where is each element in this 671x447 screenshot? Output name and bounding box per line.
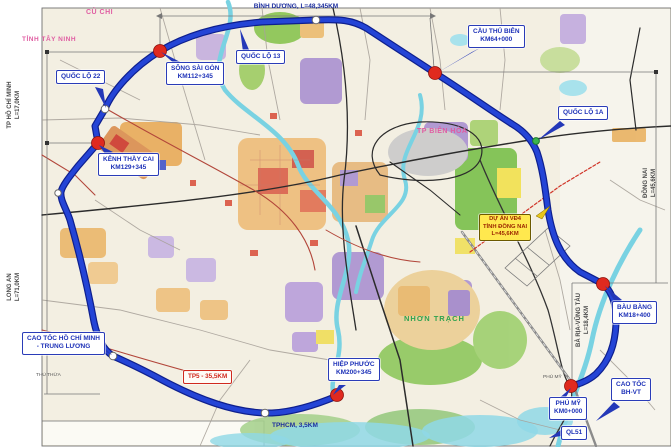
callout-phu-my: PHÚ MỸ KM0+000: [549, 397, 587, 420]
callout-cau-thu-bien: CẦU THỦ BIÊN KM64+000: [468, 25, 525, 48]
edge-section-dong-nai: ĐỒNG NAI L=45,6KM: [642, 168, 658, 198]
region-label-cu-chi: CỦ CHI: [86, 9, 113, 16]
segment-length-label: TP5 - 35,5KM: [188, 373, 227, 380]
project-length: L=45,6KM: [483, 231, 527, 239]
junction-red-phu-my: [565, 380, 578, 393]
junction-white-left: [55, 190, 61, 196]
callout-quoc-lo-22: QUỐC LỘ 22: [56, 70, 105, 84]
callout-kenh-thay-cai: KÊNH THẦY CAI KM129+345: [98, 153, 159, 176]
callout-quoc-lo-1a: QUỐC LỘ 1A: [558, 106, 608, 120]
callout-label: QUỐC LỘ 13: [241, 53, 280, 60]
callout-km: KM129+345: [103, 164, 154, 172]
section-name: ĐỒNG NAI: [642, 168, 650, 198]
junction-green-ql1a: [533, 138, 540, 145]
callout-km: KM64+000: [473, 36, 520, 44]
callout-km: KM112+345: [171, 73, 219, 81]
edge-section-long-an: LONG AN L=71,0KM: [6, 273, 22, 301]
callout-line1: CAO TỐC: [616, 381, 646, 389]
callout-quoc-lo-13: QUỐC LỘ 13: [236, 50, 285, 64]
ring-road-4-planning-map: QUỐC LỘ 22 SÔNG SÀI GÒN KM112+345 QUỐC L…: [0, 0, 671, 447]
junction-white-top: [312, 16, 320, 24]
callout-cao-toc-bh-vt: CAO TỐC BH-VT: [611, 378, 651, 401]
callout-km: KM0+000: [554, 408, 582, 416]
project-line2: TỈNH ĐỒNG NAI: [483, 224, 527, 232]
callout-name: HIỆP PHƯỚC: [333, 361, 375, 369]
callout-line1: CAO TỐC HỒ CHÍ MINH: [27, 335, 100, 343]
callout-line2: - TRUNG LƯƠNG: [27, 343, 100, 351]
junction-white-bottom: [261, 409, 269, 417]
section-length: L=17,0KM: [14, 81, 22, 128]
edge-section-ba-ria-vung-tau: BÀ RỊA-VŨNG TÀU L=18,4KM: [575, 293, 591, 347]
junction-white-trung-luong: [109, 352, 117, 360]
callout-bau-bang: BÀU BÀNG KM18+400: [612, 301, 657, 324]
callout-du-an-vd4-dong-nai: DỰ ÁN VĐ4 TỈNH ĐỒNG NAI L=45,6KM: [479, 214, 531, 241]
town-label-phu-my: PHÚ MỸ: [543, 375, 562, 380]
callout-label: QUỐC LỘ 1A: [563, 109, 603, 116]
edge-section-tp-hcm: TP HỒ CHÍ MINH L=17,0KM: [6, 81, 22, 128]
callout-name: KÊNH THẦY CAI: [103, 156, 154, 164]
section-name: LONG AN: [6, 273, 14, 301]
section-name: BÀ RỊA-VŨNG TÀU: [575, 293, 583, 347]
callout-name: SÔNG SÀI GÒN: [171, 65, 219, 73]
section-name: TP HỒ CHÍ MINH: [6, 81, 14, 128]
callout-label: QL51: [566, 429, 582, 436]
callout-tp5-length: TP5 - 35,5KM: [183, 370, 232, 384]
section-length: L=45,6KM: [650, 168, 658, 198]
project-line1: DỰ ÁN VĐ4: [483, 216, 527, 224]
callout-line2: BH-VT: [616, 389, 646, 397]
region-label-nhon-trach: NHƠN TRẠCH: [404, 314, 465, 323]
section-length: L=71,0KM: [14, 273, 22, 301]
callout-cao-toc-hcm-trung-luong: CAO TỐC HỒ CHÍ MINH - TRUNG LƯƠNG: [22, 332, 105, 355]
callout-name: BÀU BÀNG: [617, 304, 652, 312]
junction-red-song-sai-gon: [154, 45, 167, 58]
callout-name: PHÚ MỸ: [554, 400, 582, 408]
region-label-tay-ninh: TỈNH TÂY NINH: [22, 36, 76, 43]
measurement-tphcm-gap: TPHCM, 3,5KM: [272, 422, 318, 429]
callout-km: KM200+345: [333, 369, 375, 377]
callout-name: CẦU THỦ BIÊN: [473, 28, 520, 36]
measurement-binh-duong: BÌNH DƯƠNG, L=48,345KM: [216, 3, 376, 10]
town-label-thu-thua: THỦ THỪA: [36, 373, 61, 378]
junction-white-ql22: [101, 105, 109, 113]
callout-ql51: QL51: [561, 426, 587, 440]
callout-hiep-phuoc: HIỆP PHƯỚC KM200+345: [328, 358, 380, 381]
callout-label: QUỐC LỘ 22: [61, 73, 100, 80]
callout-km: KM18+400: [617, 312, 652, 320]
region-label-bien-hoa: TP BIÊN HÒA: [417, 128, 468, 135]
section-length: L=18,4KM: [583, 293, 591, 347]
junction-red-cau-thu-bien: [429, 67, 442, 80]
callout-song-sai-gon: SÔNG SÀI GÒN KM112+345: [166, 62, 224, 85]
